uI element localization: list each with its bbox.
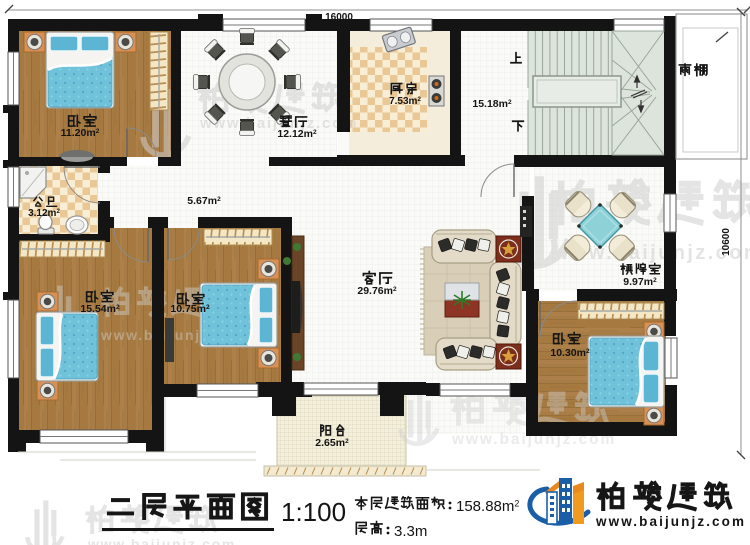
svg-text:7.53m2: 7.53m2 bbox=[389, 96, 421, 107]
svg-text:2.65m2: 2.65m2 bbox=[315, 437, 349, 449]
svg-text:1:100: 1:100 bbox=[281, 497, 346, 527]
svg-text:10.75m2: 10.75m2 bbox=[170, 303, 210, 315]
svg-text:3.3m: 3.3m bbox=[394, 523, 427, 540]
svg-text:10.30m2: 10.30m2 bbox=[550, 347, 590, 359]
svg-text:15.54m2: 15.54m2 bbox=[80, 303, 120, 315]
svg-text:5.67m2: 5.67m2 bbox=[187, 195, 221, 207]
svg-text:11.20m2: 11.20m2 bbox=[61, 127, 100, 139]
svg-text:29.76m2: 29.76m2 bbox=[357, 285, 397, 297]
svg-text:www.baijunjz.com: www.baijunjz.com bbox=[87, 536, 236, 545]
svg-text:16000: 16000 bbox=[325, 12, 353, 23]
svg-text:15.18m2: 15.18m2 bbox=[472, 98, 512, 110]
svg-text:158.88m2: 158.88m2 bbox=[456, 498, 519, 515]
svg-text:12.12m2: 12.12m2 bbox=[277, 128, 317, 140]
svg-text:10600: 10600 bbox=[721, 228, 732, 256]
svg-text:www.baijunjz.com: www.baijunjz.com bbox=[595, 514, 746, 529]
svg-text:9.97m2: 9.97m2 bbox=[623, 276, 657, 288]
svg-text:3.12m2: 3.12m2 bbox=[28, 208, 60, 219]
